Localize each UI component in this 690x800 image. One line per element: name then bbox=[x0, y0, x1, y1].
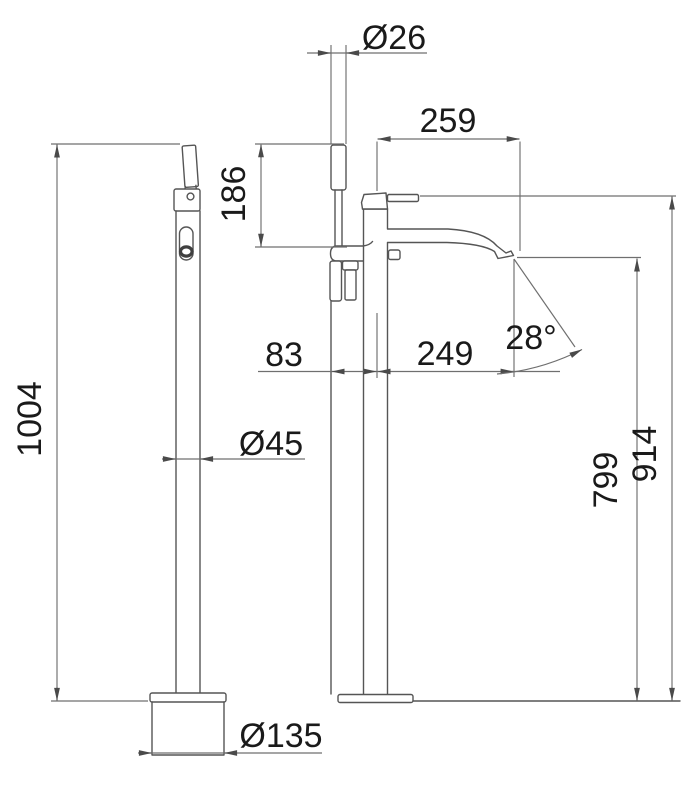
shower-holder-side bbox=[331, 242, 373, 262]
hand-shower-head-front bbox=[182, 145, 198, 187]
hose-connector-cap bbox=[343, 261, 359, 270]
base-plate-side bbox=[338, 695, 413, 703]
hand-shower-grid-face bbox=[182, 145, 198, 187]
shower-bracket-front bbox=[174, 189, 200, 211]
dim-label-spout-total-reach: 259 bbox=[420, 102, 477, 140]
dim-label-mixer-top-height: 914 bbox=[626, 426, 664, 483]
front-view-column bbox=[150, 145, 226, 755]
dim-label-total-height: 1004 bbox=[11, 381, 49, 457]
dim-o26-lines bbox=[307, 45, 427, 144]
dim-label-base-diameter: Ø135 bbox=[239, 717, 322, 755]
drawing-sheet: Ø26 259 186 83 249 28° 799 914 1004 Ø45 … bbox=[0, 0, 690, 800]
column-body-front bbox=[176, 211, 200, 693]
lever-handle bbox=[388, 195, 419, 202]
cartridge-head bbox=[362, 193, 388, 209]
dimension-labels: Ø26 259 186 83 249 28° 799 914 1004 Ø45 … bbox=[11, 19, 664, 755]
spout-side bbox=[388, 229, 514, 259]
mixer-riser-body bbox=[363, 209, 388, 695]
dim-label-hand-shower-diameter: Ø26 bbox=[362, 19, 426, 57]
dim-label-column-diameter: Ø45 bbox=[239, 425, 303, 463]
shower-handle-lower bbox=[330, 261, 342, 301]
dim-label-hand-shower-height: 186 bbox=[215, 166, 253, 223]
technical-drawing: Ø26 259 186 83 249 28° 799 914 1004 Ø45 … bbox=[0, 0, 690, 800]
dim-label-hand-shower-offset: 83 bbox=[265, 336, 303, 374]
base-plate-front bbox=[150, 693, 226, 702]
dim-label-spout-angle: 28° bbox=[505, 319, 556, 357]
dim-label-spout-reach: 249 bbox=[417, 335, 474, 373]
spout-outlet-front bbox=[181, 247, 193, 256]
diverter-knob bbox=[389, 250, 401, 260]
base-cylinder-front bbox=[152, 702, 224, 755]
dim-1004-lines bbox=[51, 144, 180, 701]
hand-shower-tube-side bbox=[335, 190, 342, 246]
hose-connector-body bbox=[345, 270, 356, 300]
side-view-mixer bbox=[330, 145, 680, 703]
dim-label-spout-outlet-height: 799 bbox=[587, 452, 625, 509]
hand-shower-grip-side bbox=[331, 145, 346, 190]
